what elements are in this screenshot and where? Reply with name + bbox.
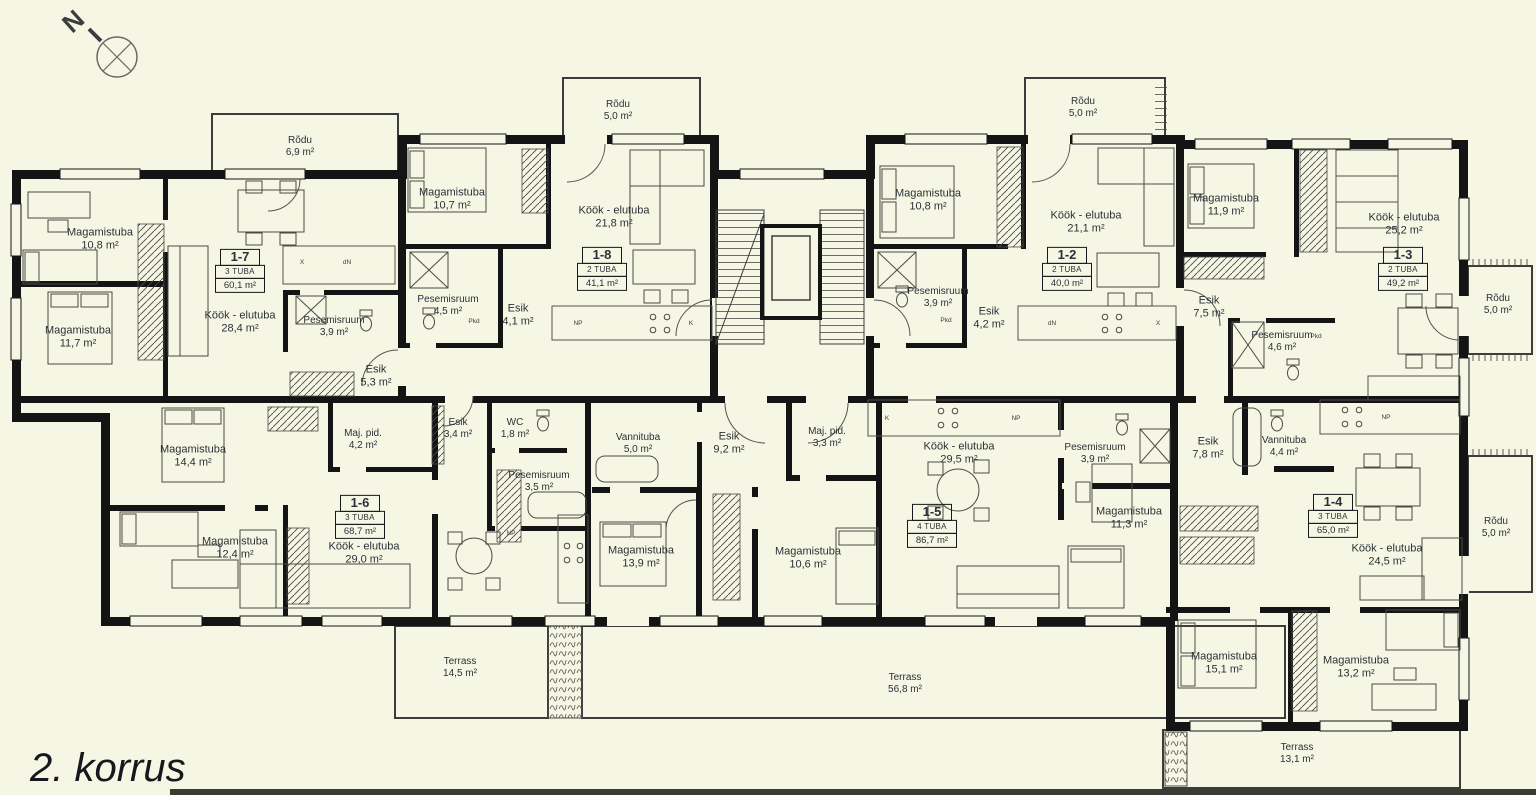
fixture-label: Pkd [468, 319, 479, 326]
apartment-type: 3 TUBA [1308, 510, 1358, 524]
apartment-id: 1-4 [1313, 494, 1353, 511]
room-area: 13,9 m² [608, 558, 674, 571]
apartment-tag: 1-22 TUBA40,0 m² [1042, 247, 1092, 291]
room-name: Esik [1193, 295, 1224, 308]
room-area: 21,1 m² [1051, 223, 1122, 236]
room-name: Magamistuba [775, 546, 841, 559]
apartment-area: 68,7 m² [335, 524, 385, 539]
room-name: Rõdu [286, 135, 314, 147]
room-area: 4,1 m² [502, 316, 533, 329]
room-area: 4,5 m² [417, 306, 478, 318]
room-area: 4,4 m² [1262, 447, 1306, 459]
room-name: Esik [502, 303, 533, 316]
room-label: Esik7,5 m² [1193, 295, 1224, 322]
room-label: Maj. pid.4,2 m² [344, 428, 382, 452]
apartment-area: 41,1 m² [577, 276, 627, 291]
apartment-tag: 1-32 TUBA49,2 m² [1378, 247, 1428, 291]
room-name: Rõdu [1482, 516, 1510, 528]
room-label: Magamistuba15,1 m² [1191, 651, 1257, 678]
room-label: Esik9,2 m² [713, 431, 744, 458]
room-name: Esik [713, 431, 744, 444]
room-name: Pesemisruum [508, 470, 569, 482]
fixture-label: Pkd [940, 318, 951, 325]
room-label: Esik4,1 m² [502, 303, 533, 330]
room-name: Esik [360, 364, 391, 377]
balcony-label: Rõdu5,0 m² [604, 99, 632, 123]
room-area: 7,5 m² [1193, 308, 1224, 321]
terrace-label: Terrass56,8 m² [888, 672, 922, 696]
room-label: Magamistuba11,9 m² [1193, 193, 1259, 220]
room-name: Terrass [443, 656, 477, 668]
room-name: Magamistuba [160, 444, 226, 457]
room-area: 13,1 m² [1280, 754, 1314, 766]
room-name: Magamistuba [608, 545, 674, 558]
room-name: Esik [444, 417, 472, 429]
fixture-label: dN [1048, 321, 1056, 328]
apartment-tag: 1-63 TUBA68,7 m² [335, 495, 385, 539]
room-area: 4,6 m² [1251, 342, 1312, 354]
room-area: 4,2 m² [344, 440, 382, 452]
apartment-id: 1-2 [1047, 247, 1087, 264]
room-name: Magamistuba [1323, 655, 1389, 668]
apartment-type: 4 TUBA [907, 520, 957, 534]
room-name: Köök - elutuba [579, 205, 650, 218]
apartment-id: 1-8 [582, 247, 622, 264]
room-name: WC [501, 417, 529, 429]
apartment-tag: 1-82 TUBA41,1 m² [577, 247, 627, 291]
room-area: 11,3 m² [1096, 519, 1162, 532]
apartment-type: 2 TUBA [577, 263, 627, 277]
room-name: Magamistuba [1193, 193, 1259, 206]
balcony-label: Rõdu6,9 m² [286, 135, 314, 159]
room-name: Rõdu [604, 99, 632, 111]
label-layer: N 2. korrus Magamistuba10,8 m² Magamistu… [0, 0, 1536, 795]
room-name: Köök - elutuba [1051, 210, 1122, 223]
room-name: Magamistuba [1191, 651, 1257, 664]
fixture-label: K [885, 416, 889, 423]
room-label: Pesemisruum4,5 m² [417, 294, 478, 318]
room-name: Vannituba [616, 432, 660, 444]
north-label: N [56, 4, 91, 40]
room-name: Esik [973, 306, 1004, 319]
apartment-tag: 1-43 TUBA65,0 m² [1308, 494, 1358, 538]
room-label: Vannituba4,4 m² [1262, 435, 1306, 459]
room-name: Rõdu [1069, 96, 1097, 108]
room-area: 3,9 m² [303, 327, 364, 339]
room-name: Pesemisruum [1251, 330, 1312, 342]
room-area: 14,5 m² [443, 668, 477, 680]
room-label: WC1,8 m² [501, 417, 529, 441]
room-area: 13,2 m² [1323, 668, 1389, 681]
room-label: Pesemisruum3,9 m² [1064, 442, 1125, 466]
room-area: 3,3 m² [808, 438, 846, 450]
room-area: 12,4 m² [202, 549, 268, 562]
apartment-area: 49,2 m² [1378, 276, 1428, 291]
room-area: 10,8 m² [67, 240, 133, 253]
room-label: Magamistuba10,8 m² [895, 188, 961, 215]
apartment-id: 1-7 [220, 249, 260, 266]
fixture-label: X [1156, 321, 1160, 328]
apartment-area: 60,1 m² [215, 278, 265, 293]
terrace-label: Terrass13,1 m² [1280, 742, 1314, 766]
room-label: Köök - elutuba24,5 m² [1352, 543, 1423, 570]
room-name: Köök - elutuba [329, 541, 400, 554]
room-area: 11,7 m² [45, 338, 111, 351]
apartment-id: 1-5 [912, 504, 952, 521]
room-name: Magamistuba [419, 187, 485, 200]
room-area: 11,9 m² [1193, 206, 1259, 219]
room-label: Magamistuba10,8 m² [67, 227, 133, 254]
room-area: 10,8 m² [895, 201, 961, 214]
room-label: Köök - elutuba28,4 m² [205, 310, 276, 337]
room-name: Köök - elutuba [924, 441, 995, 454]
page-title: 2. korrus [30, 746, 186, 791]
room-name: Terrass [888, 672, 922, 684]
room-name: Pesemisruum [1064, 442, 1125, 454]
room-label: Magamistuba14,4 m² [160, 444, 226, 471]
room-area: 3,9 m² [1064, 454, 1125, 466]
room-name: Magamistuba [67, 227, 133, 240]
room-area: 5,0 m² [604, 111, 632, 123]
room-name: Pesemisruum [417, 294, 478, 306]
room-label: Pesemisruum3,9 m² [303, 315, 364, 339]
room-label: Köök - elutuba29,0 m² [329, 541, 400, 568]
fixture-label: NP [1011, 416, 1020, 423]
room-name: Rõdu [1484, 293, 1512, 305]
room-name: Vannituba [1262, 435, 1306, 447]
balcony-label: Rõdu5,0 m² [1484, 293, 1512, 317]
room-area: 10,6 m² [775, 559, 841, 572]
room-area: 5,0 m² [1069, 108, 1097, 120]
room-name: Köök - elutuba [1369, 212, 1440, 225]
apartment-area: 40,0 m² [1042, 276, 1092, 291]
room-label: Pesemisruum4,6 m² [1251, 330, 1312, 354]
apartment-area: 65,0 m² [1308, 523, 1358, 538]
room-name: Pesemisruum [907, 286, 968, 298]
apartment-id: 1-3 [1383, 247, 1423, 264]
fixture-label: NP [1381, 415, 1390, 422]
room-label: Magamistuba12,4 m² [202, 536, 268, 563]
floor-plan: N 2. korrus Magamistuba10,8 m² Magamistu… [0, 0, 1536, 795]
room-label: Magamistuba11,3 m² [1096, 506, 1162, 533]
room-name: Pesemisruum [303, 315, 364, 327]
room-area: 29,0 m² [329, 554, 400, 567]
room-label: Esik4,2 m² [973, 306, 1004, 333]
room-area: 28,4 m² [205, 323, 276, 336]
room-label: Magamistuba11,7 m² [45, 325, 111, 352]
apartment-tag: 1-54 TUBA86,7 m² [907, 504, 957, 548]
room-area: 25,2 m² [1369, 225, 1440, 238]
apartment-type: 3 TUBA [335, 511, 385, 525]
fixture-label: X [300, 260, 304, 267]
room-area: 6,9 m² [286, 147, 314, 159]
room-label: Esik7,8 m² [1192, 436, 1223, 463]
fixture-label: Pkd [1310, 334, 1321, 341]
room-name: Köök - elutuba [1352, 543, 1423, 556]
room-area: 14,4 m² [160, 457, 226, 470]
room-name: Magamistuba [1096, 506, 1162, 519]
room-area: 5,0 m² [1484, 305, 1512, 317]
apartment-type: 2 TUBA [1378, 263, 1428, 277]
fixture-label: dN [343, 260, 351, 267]
room-area: 15,1 m² [1191, 664, 1257, 677]
room-name: Köök - elutuba [205, 310, 276, 323]
room-label: Pesemisruum3,9 m² [907, 286, 968, 310]
terrace-label: Terrass14,5 m² [443, 656, 477, 680]
room-area: 3,4 m² [444, 429, 472, 441]
room-name: Magamistuba [202, 536, 268, 549]
room-area: 3,5 m² [508, 482, 569, 494]
balcony-label: Rõdu5,0 m² [1069, 96, 1097, 120]
apartment-type: 3 TUBA [215, 265, 265, 279]
room-name: Magamistuba [45, 325, 111, 338]
fixture-label: NP [573, 321, 582, 328]
room-area: 1,8 m² [501, 429, 529, 441]
room-name: Terrass [1280, 742, 1314, 754]
room-label: Magamistuba13,2 m² [1323, 655, 1389, 682]
room-name: Magamistuba [895, 188, 961, 201]
room-label: Pesemisruum3,5 m² [508, 470, 569, 494]
room-label: Vannituba5,0 m² [616, 432, 660, 456]
room-area: 21,8 m² [579, 218, 650, 231]
room-area: 4,2 m² [973, 319, 1004, 332]
room-name: Maj. pid. [344, 428, 382, 440]
fixture-label: K [689, 321, 693, 328]
room-label: Köök - elutuba25,2 m² [1369, 212, 1440, 239]
room-area: 3,9 m² [907, 298, 968, 310]
room-label: Esik3,4 m² [444, 417, 472, 441]
room-area: 10,7 m² [419, 200, 485, 213]
room-label: Magamistuba10,7 m² [419, 187, 485, 214]
apartment-type: 2 TUBA [1042, 263, 1092, 277]
room-area: 5,0 m² [1482, 528, 1510, 540]
room-area: 5,3 m² [360, 377, 391, 390]
room-label: Maj. pid.3,3 m² [808, 426, 846, 450]
room-name: Maj. pid. [808, 426, 846, 438]
room-area: 5,0 m² [616, 444, 660, 456]
room-label: Esik5,3 m² [360, 364, 391, 391]
room-area: 56,8 m² [888, 684, 922, 696]
room-area: 7,8 m² [1192, 449, 1223, 462]
apartment-id: 1-6 [340, 495, 380, 512]
balcony-label: Rõdu5,0 m² [1482, 516, 1510, 540]
room-label: Köök - elutuba29,5 m² [924, 441, 995, 468]
room-area: 24,5 m² [1352, 556, 1423, 569]
apartment-area: 86,7 m² [907, 533, 957, 548]
room-label: Magamistuba10,6 m² [775, 546, 841, 573]
room-label: Köök - elutuba21,8 m² [579, 205, 650, 232]
apartment-tag: 1-73 TUBA60,1 m² [215, 249, 265, 293]
room-area: 29,5 m² [924, 454, 995, 467]
room-label: Köök - elutuba21,1 m² [1051, 210, 1122, 237]
fixture-label: NP [506, 531, 515, 538]
room-area: 9,2 m² [713, 444, 744, 457]
room-name: Esik [1192, 436, 1223, 449]
room-label: Magamistuba13,9 m² [608, 545, 674, 572]
